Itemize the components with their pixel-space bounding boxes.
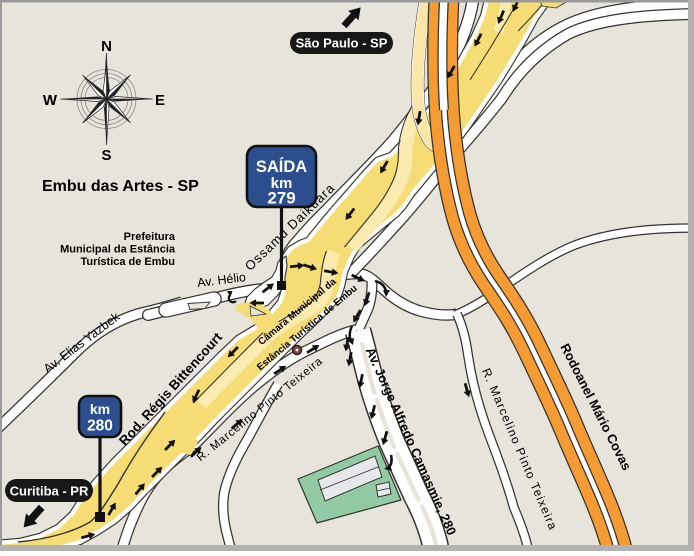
- svg-text:N: N: [101, 38, 112, 55]
- svg-text:S: S: [101, 147, 111, 164]
- svg-text:São Paulo - SP: São Paulo - SP: [296, 36, 388, 51]
- svg-text:W: W: [43, 92, 58, 109]
- svg-text:279: 279: [267, 189, 295, 208]
- svg-text:Prefeitura: Prefeitura: [124, 231, 176, 243]
- svg-text:km: km: [90, 401, 110, 417]
- svg-text:SAÍDA: SAÍDA: [256, 157, 307, 176]
- svg-text:Turística de Embu: Turística de Embu: [80, 256, 175, 268]
- svg-text:Embu das Artes - SP: Embu das Artes - SP: [42, 178, 199, 195]
- svg-text:Curitiba - PR: Curitiba - PR: [10, 484, 89, 499]
- svg-text:E: E: [155, 92, 165, 109]
- svg-text:280: 280: [87, 418, 113, 435]
- svg-text:Municipal da Estância: Municipal da Estância: [60, 244, 176, 256]
